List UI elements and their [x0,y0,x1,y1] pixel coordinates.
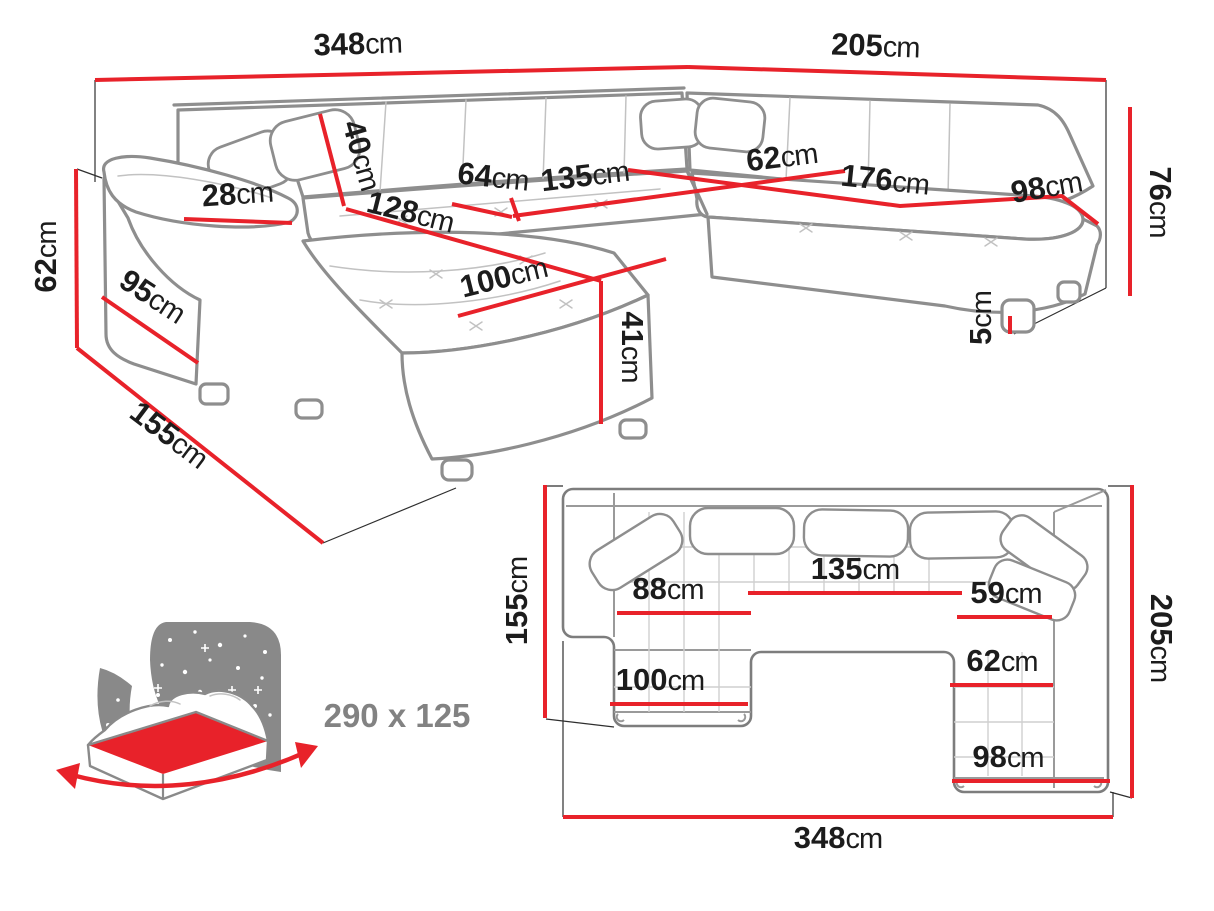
dim-label-seat-height: 41cm [615,311,650,382]
sofa-foot [1058,282,1080,302]
dim-label-back-width: 348cm [313,24,403,62]
dim-label-plan-chaise-width: 100cm [616,662,704,697]
dim-label-plan-right-outer-width: 98cm [972,739,1043,774]
perspective-view: 348cm 205cm 76cm 62cm 155cm 95cm 28cm 40… [28,24,1178,543]
dim-label-plan-mid-seat-width: 135cm [811,551,899,586]
dim-label-back-height: 76cm [1143,166,1178,237]
dim-label-plan-right-depth: 205cm [1144,594,1179,682]
sofa-foot [442,460,472,480]
dim-label-leg-height: 5cm [963,291,998,345]
bracket-155-bottom [546,719,614,727]
dim-label-arm-height: 62cm [28,221,63,292]
dim-label-plan-right-inner-width: 62cm [966,643,1037,678]
sofa-foot-5cm [1002,300,1034,332]
dim-label-chaise-depth: 155cm [123,394,215,475]
sofa-dimensions-diagram: 348cm 205cm 76cm 62cm 155cm 95cm 28cm 40… [0,0,1214,911]
arrow-head-left [56,763,80,789]
sleeping-size-label: 290 x 125 [324,697,471,734]
sofa-foot [200,384,228,404]
arm-top-guide [77,169,102,178]
pillow [804,509,909,557]
sofa-foot [620,420,646,438]
sofa-foot [296,400,322,418]
floor-line-front [323,488,456,543]
dim-label-right-width: 205cm [831,26,921,64]
dim-line-62-left [76,169,77,348]
dim-label-plan-right-seat-width: 59cm [970,575,1041,610]
dim-line-205 [688,67,1106,80]
dim-label-arm-width: 28cm [201,174,274,214]
dim-label-plan-left-depth: 155cm [499,557,534,645]
dim-label-plan-chaise-seat-width: 88cm [632,571,703,606]
dim-label-plan-total-width: 348cm [794,820,882,855]
pillow [910,511,1015,559]
dim-line-348 [95,67,688,80]
sleeping-function-icon: 290 x 125 [56,622,470,799]
arrow-head-right [295,742,318,768]
pillow [690,508,794,554]
plan-view: 155cm 205cm 88cm 135cm 59cm 62cm 100cm 9… [499,485,1179,855]
